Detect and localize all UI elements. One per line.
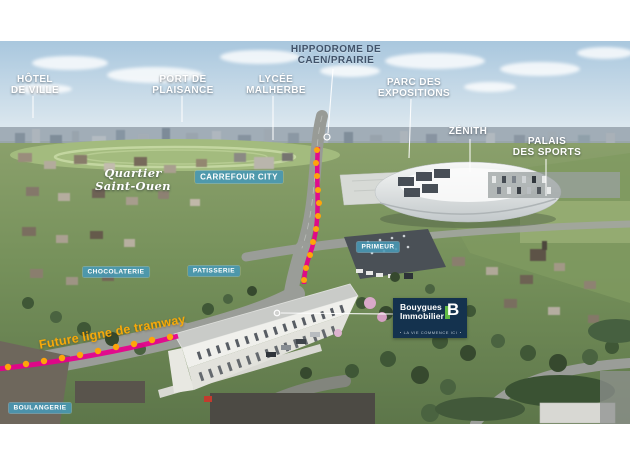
label-line: HÔTEL <box>11 74 59 85</box>
logo-row: Bouygues Immobilier B <box>400 303 461 322</box>
label-line: Saint-Ouen <box>95 180 171 193</box>
label-line: DES SPORTS <box>513 147 581 158</box>
label-line: PALAIS <box>513 136 581 147</box>
label-line: MALHERBE <box>246 85 306 96</box>
aerial-photo <box>0 41 630 424</box>
badge-primeur: PRIMEUR <box>356 242 399 253</box>
bouygues-immobilier-logo: Bouygues Immobilier B LA VIE COMMENCE IC… <box>393 298 467 338</box>
aerial-landscape-graphic <box>0 41 630 424</box>
logo-tagline: LA VIE COMMENCE ICI <box>400 330 461 335</box>
label-line: DE VILLE <box>11 85 59 96</box>
label-parc-des-expositions: PARC DES EXPOSITIONS <box>378 77 450 99</box>
label-line: HIPPODROME DE <box>291 44 381 55</box>
logo-b-mark-icon: B <box>445 303 461 321</box>
label-quartier-saint-ouen: Quartier Saint-Ouen <box>95 167 171 193</box>
label-palais-des-sports: PALAIS DES SPORTS <box>513 136 581 158</box>
label-port-de-plaisance: PORT DE PLAISANCE <box>152 74 213 96</box>
label-line: PLAISANCE <box>152 85 213 96</box>
label-hippodrome: HIPPODROME DE CAEN/PRAIRIE <box>291 44 381 66</box>
badge-patisserie: PATISSERIE <box>188 266 240 277</box>
label-line: PORT DE <box>152 74 213 85</box>
logo-b-letter: B <box>447 300 459 320</box>
label-line: ZÉNITH <box>449 126 488 137</box>
label-line: LYCÉE <box>246 74 306 85</box>
badge-chocolaterie: CHOCOLATERIE <box>83 267 150 278</box>
label-line: EXPOSITIONS <box>378 88 450 99</box>
logo-brand-line: Immobilier <box>400 312 444 321</box>
label-lycee-malherbe: LYCÉE MALHERBE <box>246 74 306 96</box>
badge-carrefour-city: CARREFOUR CITY <box>195 171 283 184</box>
label-line: PARC DES <box>378 77 450 88</box>
badge-boulangerie: BOULANGERIE <box>9 403 72 414</box>
label-hotel-de-ville: HÔTEL DE VILLE <box>11 74 59 96</box>
logo-brand-name: Bouygues Immobilier <box>400 303 444 322</box>
label-line: CAEN/PRAIRIE <box>291 55 381 66</box>
real-estate-poster: HÔTEL DE VILLE PORT DE PLAISANCE LYCÉE M… <box>0 0 640 470</box>
label-zenith: ZÉNITH <box>449 126 488 137</box>
label-line: Quartier <box>95 167 171 180</box>
